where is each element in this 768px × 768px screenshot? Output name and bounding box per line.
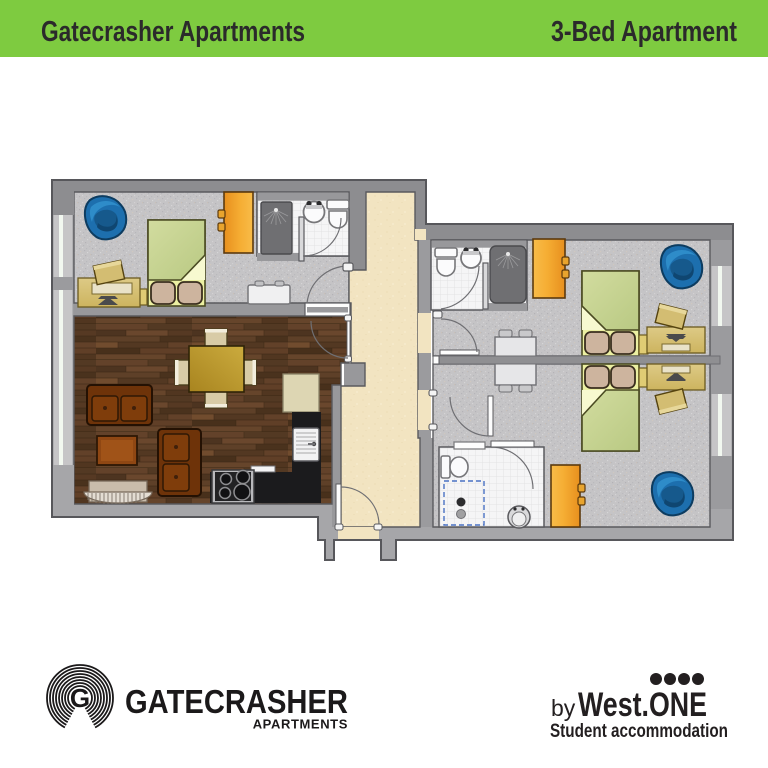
svg-text:Student accommodation: Student accommodation: [550, 720, 728, 742]
svg-text:APARTMENTS: APARTMENTS: [253, 717, 348, 732]
svg-text:Gatecrasher Apartments: Gatecrasher Apartments: [41, 16, 305, 48]
svg-text:GATECRASHER: GATECRASHER: [125, 684, 348, 721]
svg-text:G: G: [70, 683, 90, 713]
svg-text:West.ONE: West.ONE: [578, 686, 707, 724]
svg-text:3-Bed Apartment: 3-Bed Apartment: [551, 16, 737, 48]
svg-text:by: by: [551, 695, 576, 721]
